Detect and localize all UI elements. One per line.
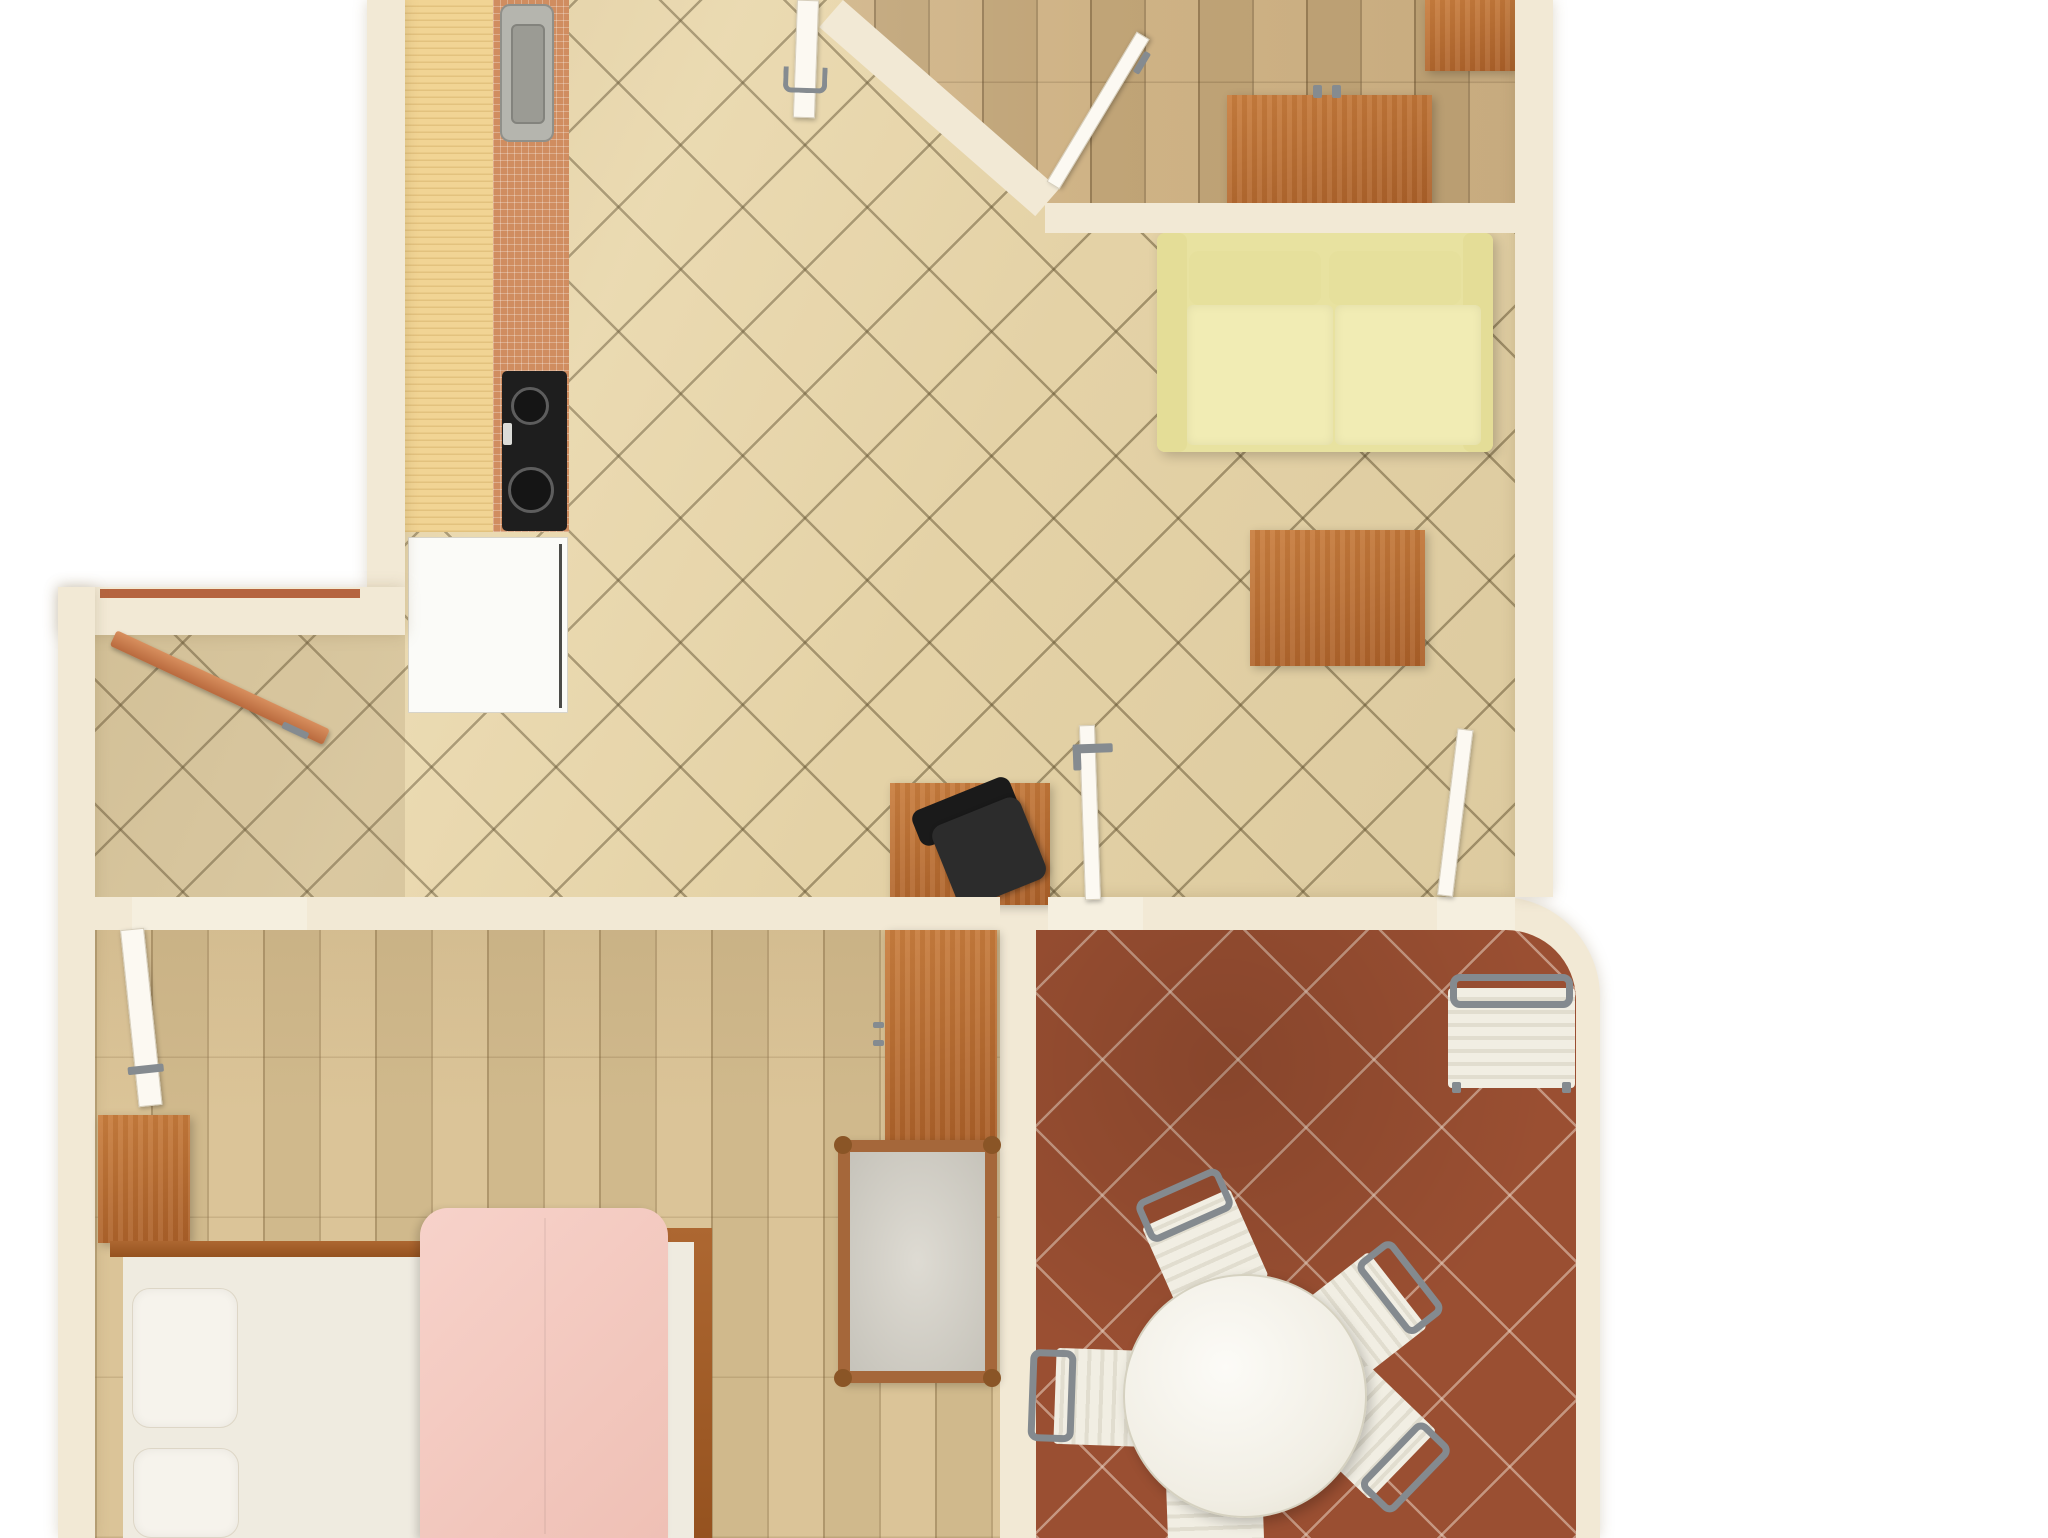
crib-knob-tl <box>834 1136 852 1154</box>
crib-bench <box>838 1140 997 1383</box>
bed-rail-top <box>110 1241 430 1257</box>
coffee-table <box>1250 530 1425 666</box>
fridge-door-line <box>559 544 562 708</box>
dining-sideboard <box>1448 974 1575 1095</box>
hallway-window <box>100 589 360 598</box>
sofa-armrest-left <box>1157 233 1187 452</box>
crib-knob-bl <box>834 1369 852 1387</box>
kitchen-counter <box>405 0 493 532</box>
wardrobe-handle-top <box>873 1022 884 1028</box>
sideboard-foot-right <box>1562 1082 1571 1093</box>
kitchen-stove <box>502 371 567 531</box>
dining-table <box>1123 1274 1367 1518</box>
office-dresser-knob-right <box>1332 85 1341 98</box>
bed-pillow-top <box>132 1288 238 1428</box>
bedside-dresser <box>98 1115 190 1243</box>
bed-mattress-edge <box>668 1242 694 1538</box>
wall-bottom-left-stub <box>95 897 132 930</box>
threshold-dining-door-right <box>1437 897 1515 930</box>
sideboard-foot-left <box>1452 1082 1461 1093</box>
sofa-seat-cushion-left <box>1187 305 1333 445</box>
office-dresser <box>1227 95 1432 207</box>
bed-duvet <box>420 1208 668 1538</box>
apartment-floor-plan <box>0 0 2048 1538</box>
office-corner-cabinet <box>1425 0 1515 71</box>
wall-bottom-main <box>307 897 1000 930</box>
sofa-back-cushion-left <box>1189 251 1321 305</box>
stove-dial <box>503 423 512 445</box>
wall-left-top <box>367 0 405 587</box>
stove-burner-small <box>511 387 549 425</box>
wall-office-bottom <box>1045 203 1515 233</box>
kitchen-sink <box>500 4 554 142</box>
sofa-seat-cushion-right <box>1335 305 1481 445</box>
kitchen-fridge <box>408 537 568 713</box>
dining-door-left-handle-2 <box>1073 744 1082 770</box>
threshold-dining-door-left <box>1048 897 1143 930</box>
duvet-seam <box>544 1218 546 1534</box>
wardrobe <box>885 930 997 1140</box>
threshold-bedroom-door <box>132 897 307 930</box>
wardrobe-handle-bottom <box>873 1040 884 1046</box>
sink-basin <box>511 24 545 124</box>
wall-left-lower <box>58 587 95 1538</box>
crib-knob-br <box>983 1369 1001 1387</box>
top-door-handle <box>783 66 828 94</box>
sofa <box>1157 233 1493 452</box>
chair-back-frame <box>1027 1349 1076 1443</box>
sideboard-frame <box>1450 974 1573 1008</box>
crib-knob-tr <box>983 1136 1001 1154</box>
sofa-back-cushion-right <box>1329 251 1461 305</box>
stove-burner-large <box>508 467 554 513</box>
office-dresser-knob-left <box>1313 85 1322 98</box>
top-door <box>793 0 819 118</box>
bed-pillow-bottom <box>133 1448 239 1538</box>
wall-right <box>1515 0 1553 897</box>
